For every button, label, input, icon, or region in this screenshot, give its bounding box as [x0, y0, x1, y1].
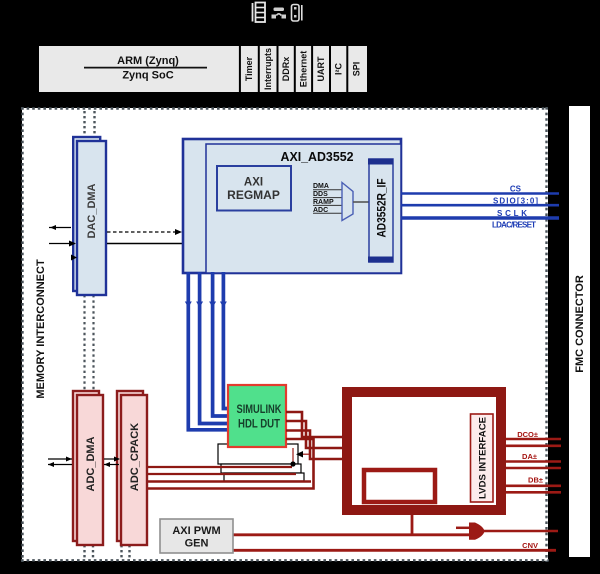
svg-text:ADC_DMA: ADC_DMA	[85, 436, 97, 491]
svg-text:DDRx: DDRx	[281, 57, 291, 82]
svg-text:SPI: SPI	[352, 62, 362, 77]
svg-text:DDS: DDS	[313, 191, 328, 198]
svg-text:HDL DUT: HDL DUT	[238, 417, 281, 431]
svg-text:Timer: Timer	[244, 56, 254, 81]
svg-text:DAC_DMA: DAC_DMA	[86, 183, 98, 238]
svg-text:MEMORY INTERCONNECT: MEMORY INTERCONNECT	[35, 259, 47, 399]
svg-text:REGMAP: REGMAP	[227, 188, 280, 202]
svg-text:Interrupts: Interrupts	[263, 48, 273, 90]
svg-text:SIMULINK: SIMULINK	[237, 402, 282, 416]
svg-text:CNV: CNV	[522, 541, 538, 550]
svg-text:LDAC/RESET: LDAC/RESET	[492, 221, 536, 230]
svg-text:AXI: AXI	[244, 177, 263, 189]
svg-text:DB±: DB±	[528, 476, 543, 485]
svg-text:FMC CONNECTOR: FMC CONNECTOR	[574, 275, 586, 373]
svg-text:AXI_AD3552: AXI_AD3552	[281, 150, 354, 164]
svg-text:LVDS INTERFACE: LVDS INTERFACE	[478, 417, 489, 499]
svg-text:SDIO[3:0]: SDIO[3:0]	[493, 197, 538, 206]
svg-text:UART: UART	[316, 56, 326, 81]
svg-text:Ethernet: Ethernet	[299, 51, 309, 88]
svg-text:ADC_CPACK: ADC_CPACK	[129, 423, 141, 491]
svg-text:AD3552R_IF: AD3552R_IF	[375, 179, 389, 238]
svg-text:AXI PWM: AXI PWM	[172, 525, 220, 537]
svg-text:DMA: DMA	[313, 183, 329, 190]
svg-text:Zynq SoC: Zynq SoC	[122, 70, 173, 82]
svg-text:GEN: GEN	[185, 538, 209, 550]
svg-text:ARM (Zynq): ARM (Zynq)	[117, 55, 179, 67]
svg-text:I²C: I²C	[334, 63, 344, 75]
svg-text:CS: CS	[510, 185, 522, 194]
svg-text:DA±: DA±	[522, 452, 537, 461]
svg-text:DCO±: DCO±	[517, 430, 538, 439]
